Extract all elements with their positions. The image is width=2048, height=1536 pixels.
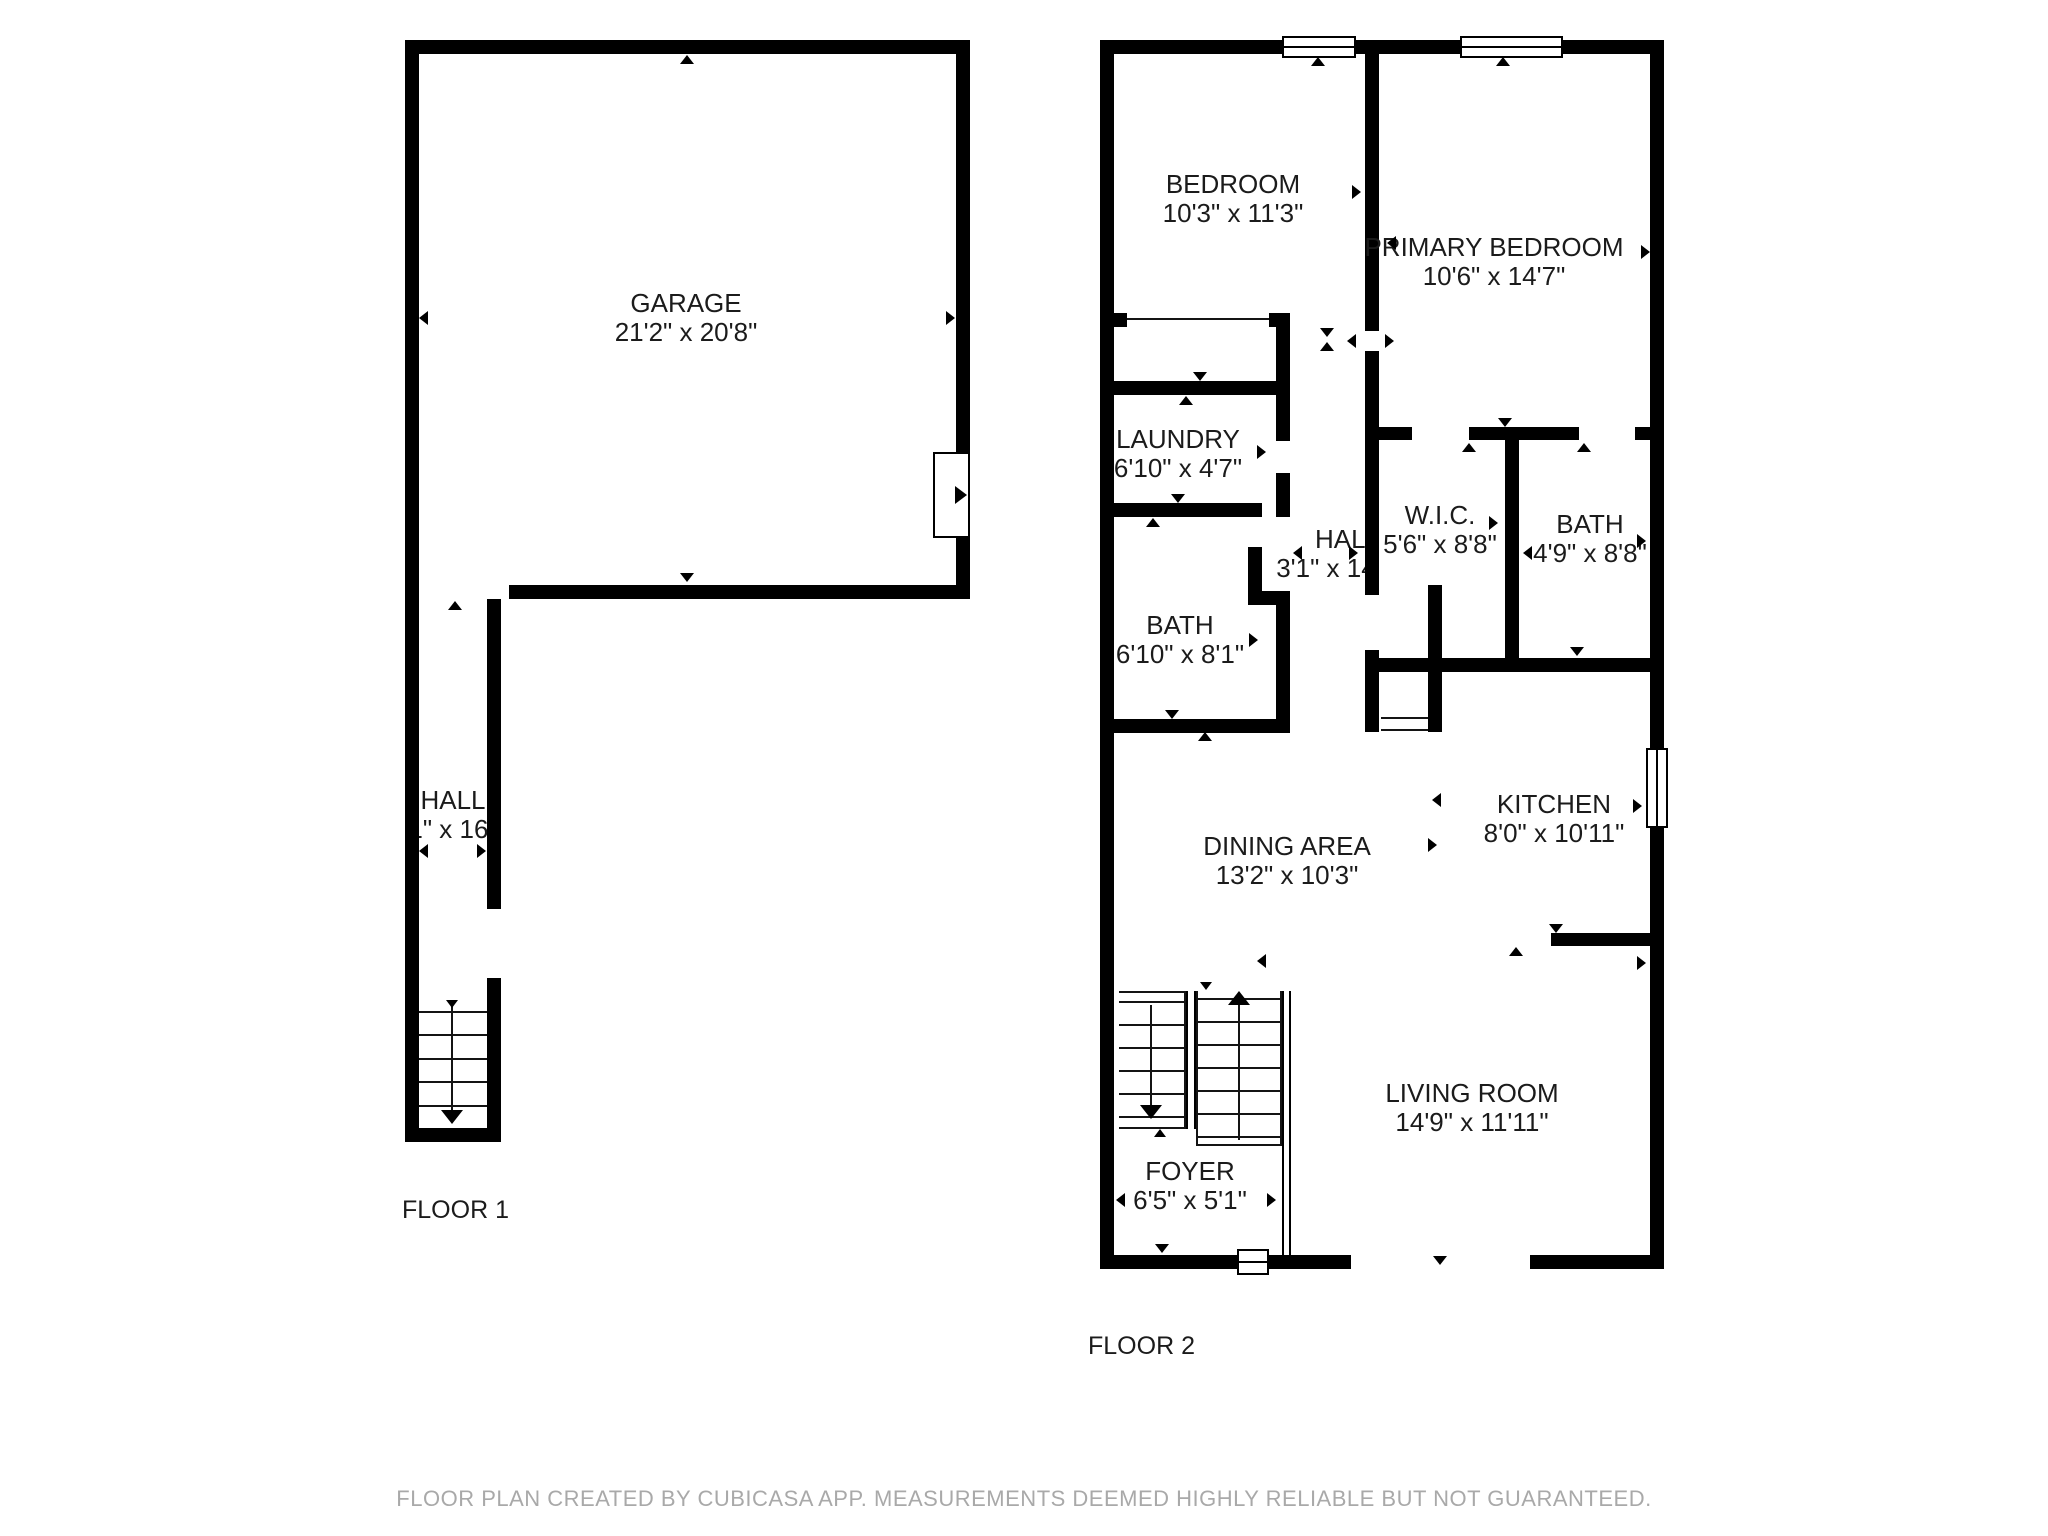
stair-tread-line [1119, 1093, 1186, 1095]
wall [1276, 473, 1290, 517]
stair-tread-line [1119, 1001, 1186, 1003]
wall [405, 40, 970, 54]
floor-2-caption: FLOOR 2 [1088, 1332, 1195, 1361]
room-name: KITCHEN [1484, 790, 1625, 819]
door-marker-icon [1193, 372, 1207, 381]
room-name: DINING AREA [1203, 832, 1371, 861]
door-marker-icon [419, 844, 428, 858]
wall [1551, 933, 1664, 946]
door-marker-icon [448, 601, 462, 610]
room-dims: 10'3" x 11'3" [1163, 199, 1304, 228]
door-marker-icon [1116, 1193, 1125, 1207]
door-marker-icon [1641, 245, 1650, 259]
wall [1100, 40, 1114, 1269]
door-marker-icon [946, 311, 955, 325]
stair-tread-line [1150, 1005, 1152, 1115]
door-marker-icon [1432, 793, 1441, 807]
room-label-bath-1: BATH 6'10" x 8'1" [1116, 611, 1244, 669]
wall [1469, 427, 1579, 440]
door-marker-icon [1257, 954, 1266, 968]
door-marker-icon [1498, 418, 1512, 427]
window-pane-line [1239, 1261, 1267, 1263]
stair-tread-line [1238, 1000, 1240, 1140]
room-dims: 21'2" x 20'8" [615, 318, 758, 347]
wall [1100, 40, 1664, 54]
door-marker-icon [1637, 956, 1646, 970]
door-marker-icon [1267, 1193, 1276, 1207]
room-dims: 6'5" x 5'1" [1133, 1186, 1247, 1215]
room-label-kitchen: KITCHEN 8'0" x 10'11" [1484, 790, 1625, 848]
door-marker-icon [446, 1000, 458, 1008]
room-label-laundry: LAUNDRY 6'10" x 4'7" [1114, 425, 1242, 483]
door-marker-icon [1462, 443, 1476, 452]
room-name: LIVING ROOM [1385, 1079, 1558, 1108]
door-marker-icon [1200, 982, 1212, 990]
door-marker-icon [1320, 328, 1334, 337]
room-name: PRIMARY BEDROOM [1364, 233, 1623, 262]
wall [1100, 719, 1290, 733]
window-icon [1460, 36, 1563, 58]
door-marker-icon [1385, 334, 1394, 348]
wall [487, 978, 501, 1142]
stair-tread-line [1184, 991, 1186, 1129]
room-dims: 4'9" x 8'8" [1533, 539, 1647, 568]
door-marker-icon [1387, 236, 1396, 250]
stair-tread-line [419, 1011, 487, 1013]
wall [1530, 1255, 1664, 1269]
door-marker-icon [1523, 546, 1532, 560]
stair-tread-line [1127, 318, 1269, 320]
room-label-garage: GARAGE 21'2" x 20'8" [615, 289, 758, 347]
room-dims: 3'1" x 14'10" [1276, 554, 1379, 583]
room-name: GARAGE [615, 289, 758, 318]
room-dims: 8'0" x 10'11" [1484, 819, 1625, 848]
stair-tread-line [1381, 717, 1428, 719]
wall [405, 40, 419, 1142]
door-marker-icon [1179, 396, 1193, 405]
wall [509, 585, 970, 599]
room-label-bath-2: BATH 4'9" x 8'8" [1533, 510, 1647, 568]
door-marker-icon [1165, 710, 1179, 719]
window-pane-line [1284, 46, 1354, 48]
door-marker-icon [1249, 633, 1258, 647]
door-marker-icon [1637, 534, 1646, 548]
wall [1650, 40, 1664, 1269]
window-icon [1282, 36, 1356, 58]
door-marker-icon [1103, 633, 1112, 647]
room-label-living-room: LIVING ROOM 14'9" x 11'11" [1385, 1079, 1558, 1137]
wall [1276, 395, 1290, 441]
door-marker-icon [1509, 947, 1523, 956]
room-label-hall-floor2: HALL 3'1" x 14'10" [1262, 524, 1379, 584]
room-name: BATH [1116, 611, 1244, 640]
door-marker-icon [680, 55, 694, 64]
window-icon [1646, 748, 1668, 828]
room-dims: 6'10" x 4'7" [1114, 454, 1242, 483]
door-marker-icon [1257, 445, 1266, 459]
door-marker-icon [1154, 1129, 1166, 1137]
room-label-primary-bedroom: PRIMARY BEDROOM 10'6" x 14'7" [1364, 233, 1623, 291]
wall [1365, 351, 1379, 595]
stair-tread-line [1119, 991, 1186, 993]
stair-tread-line [419, 1058, 487, 1060]
room-name: FOYER [1133, 1157, 1247, 1186]
disclaimer-text: FLOOR PLAN CREATED BY CUBICASA APP. MEAS… [0, 1486, 2048, 1512]
wall [1428, 585, 1442, 732]
stair-tread-line [1198, 1144, 1280, 1146]
wall [1100, 1255, 1351, 1269]
room-name: BEDROOM [1163, 170, 1304, 199]
door-marker-icon [419, 311, 428, 325]
wall [405, 1128, 501, 1142]
door-marker-icon [1570, 647, 1584, 656]
stair-tread-line [1119, 1047, 1186, 1049]
wall [1100, 381, 1290, 395]
stair-tread-line [1119, 1127, 1186, 1129]
door-marker-icon [1352, 185, 1361, 199]
room-dims: 6'10" x 8'1" [1116, 640, 1244, 669]
door-marker-icon [1155, 1244, 1169, 1253]
room-label-dining-area: DINING AREA 13'2" x 10'3" [1203, 832, 1371, 890]
door-marker-icon [1549, 924, 1563, 933]
window-pane-line [1462, 46, 1561, 48]
room-label-bedroom: BEDROOM 10'3" x 11'3" [1163, 170, 1304, 228]
room-name: W.I.C. [1383, 501, 1497, 530]
wall [1276, 591, 1290, 732]
wall [1505, 440, 1519, 672]
stair-tread-line [1119, 1070, 1186, 1072]
stair-tread-line [1381, 729, 1428, 731]
door-marker-icon [1115, 313, 1124, 327]
wall [1365, 658, 1664, 672]
door-marker-icon [1198, 732, 1212, 741]
door-marker-icon [1367, 514, 1376, 528]
stair-railing-wall [1282, 991, 1291, 1255]
door-marker-icon [1103, 816, 1112, 830]
room-dims: 14'9" x 11'11" [1385, 1108, 1558, 1137]
door-marker-icon [1496, 57, 1510, 66]
stair-direction-arrow-icon [1228, 991, 1250, 1005]
door-marker-icon [477, 844, 486, 858]
stair-direction-arrow-icon [441, 1110, 463, 1124]
room-name: BATH [1533, 510, 1647, 539]
room-name: LAUNDRY [1114, 425, 1242, 454]
stair-tread-line [1119, 1024, 1186, 1026]
stair-railing-wall [1186, 991, 1196, 1129]
door-marker-icon [1489, 516, 1498, 530]
room-dims: 5'6" x 8'8" [1383, 530, 1497, 559]
room-label-wic: W.I.C. 5'6" x 8'8" [1383, 501, 1497, 559]
door-marker-icon [680, 573, 694, 582]
stair-tread-line [419, 1081, 487, 1083]
door-marker-icon [955, 486, 967, 504]
stair-tread-line [419, 1034, 487, 1036]
stair-tread-line [451, 1004, 453, 1116]
wall [1635, 427, 1664, 440]
floor-plan-canvas [0, 0, 2048, 1536]
door-marker-icon [1103, 445, 1112, 459]
room-dims: 13'2" x 10'3" [1203, 861, 1371, 890]
stair-direction-arrow-icon [1140, 1105, 1162, 1119]
stair-tread-line [1280, 991, 1282, 1146]
door-marker-icon [1146, 518, 1160, 527]
wall [1365, 427, 1412, 440]
door-marker-icon [1293, 546, 1302, 560]
door-marker-icon [1433, 1256, 1447, 1265]
floor-1-caption: FLOOR 1 [402, 1196, 509, 1225]
door-marker-icon [1428, 838, 1437, 852]
entry-door-icon [1237, 1249, 1269, 1275]
door-marker-icon [1320, 342, 1334, 351]
window-pane-line [1656, 750, 1658, 826]
wall [487, 599, 501, 909]
door-marker-icon [1347, 334, 1356, 348]
room-name: HALL [420, 786, 485, 815]
wall [1100, 503, 1262, 517]
door-marker-icon [1349, 546, 1358, 560]
room-dims: 10'6" x 14'7" [1364, 262, 1623, 291]
door-marker-icon [1311, 57, 1325, 66]
door-marker-icon [1633, 799, 1642, 813]
door-marker-icon [1577, 443, 1591, 452]
stair-tread-line [419, 1105, 487, 1107]
door-marker-icon [1171, 494, 1185, 503]
room-label-foyer: FOYER 6'5" x 5'1" [1133, 1157, 1247, 1215]
